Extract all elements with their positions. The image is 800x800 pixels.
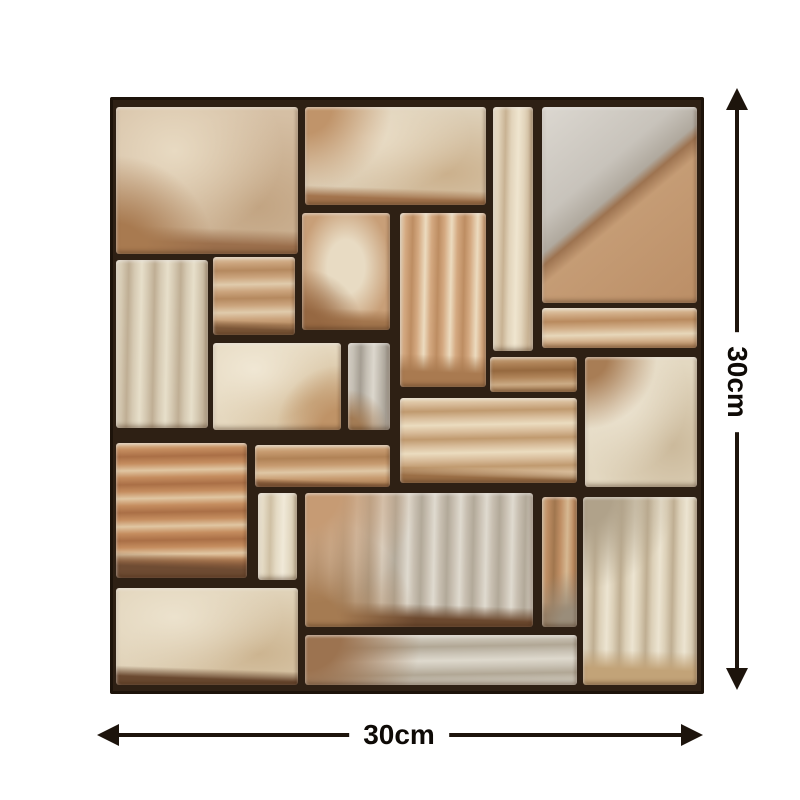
stone-W bbox=[542, 308, 697, 348]
stone-S1 bbox=[490, 357, 577, 392]
stone-R bbox=[542, 107, 697, 303]
tile-sticker-photo bbox=[110, 97, 704, 694]
stone-M1 bbox=[400, 398, 577, 483]
stone-P bbox=[305, 493, 533, 627]
stone-V bbox=[583, 497, 697, 685]
product-dimension-image: 30cm 30cm bbox=[0, 0, 800, 800]
stone-B bbox=[305, 107, 486, 205]
stone-D bbox=[213, 257, 295, 335]
stone-K bbox=[258, 493, 297, 580]
stone-J bbox=[116, 443, 247, 578]
stone-C bbox=[116, 260, 208, 428]
arrow-down-icon bbox=[726, 668, 748, 690]
stone-F1 bbox=[302, 213, 390, 330]
stone-H bbox=[255, 445, 390, 487]
stone-G bbox=[348, 343, 390, 430]
stone-Q bbox=[116, 588, 298, 685]
stone-Z bbox=[305, 635, 577, 685]
stone-F2 bbox=[400, 213, 486, 387]
stone-A bbox=[116, 107, 298, 254]
stone-U bbox=[542, 497, 577, 627]
arrow-right-icon bbox=[681, 724, 703, 746]
width-dimension-label: 30cm bbox=[349, 715, 449, 755]
stone-T bbox=[585, 357, 697, 487]
height-dimension-label: 30cm bbox=[717, 332, 757, 432]
stone-E bbox=[213, 343, 341, 430]
stone-N bbox=[493, 107, 533, 351]
